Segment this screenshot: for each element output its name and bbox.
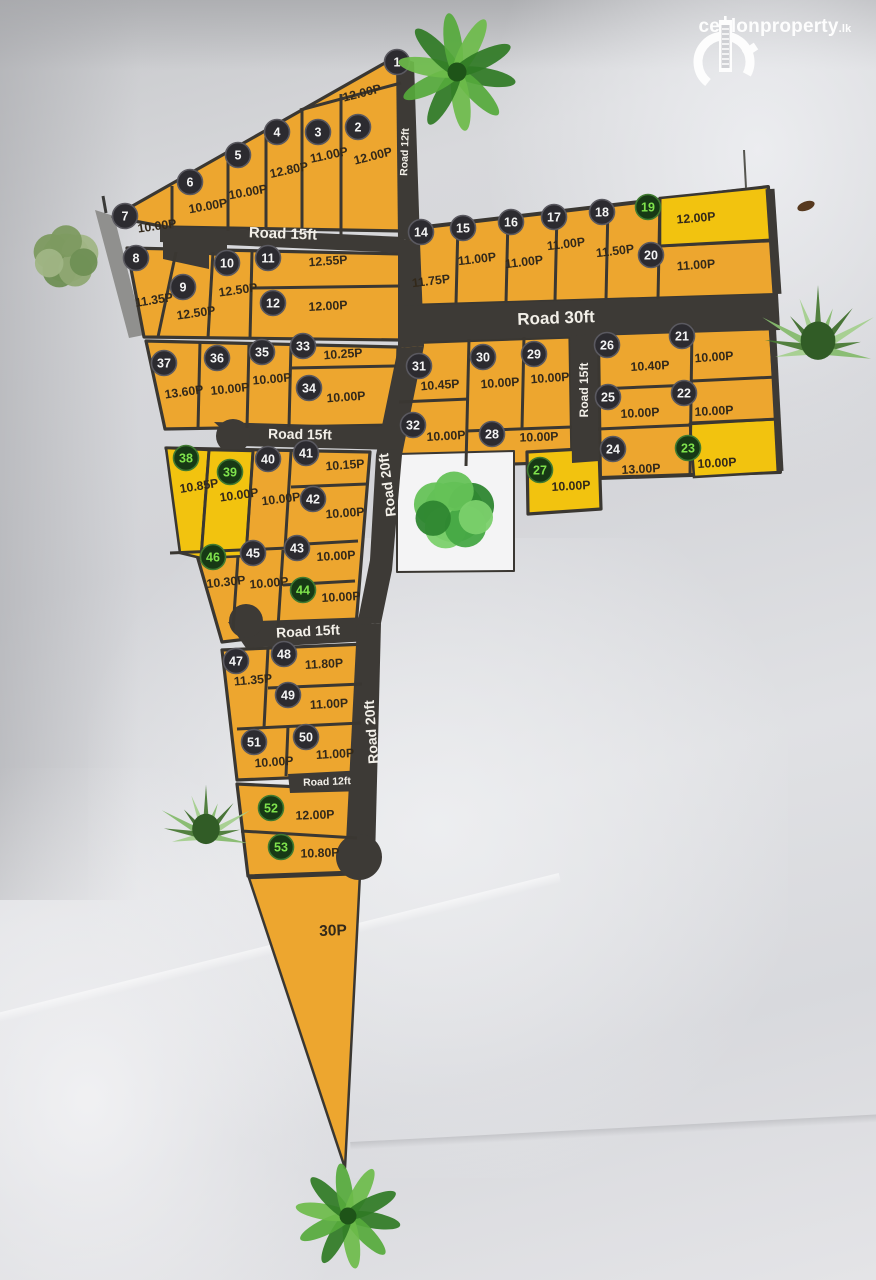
bush-icon <box>34 225 99 287</box>
plot-size-label: 10.00P <box>316 548 356 564</box>
open-area-label: 30P <box>319 922 347 940</box>
agave-center <box>192 814 220 844</box>
plot-size-label: 10.00P <box>326 389 366 406</box>
plot-number: 14 <box>414 226 428 240</box>
palm-crown <box>447 62 466 81</box>
plot-divider <box>250 252 252 339</box>
foliage-blob <box>70 248 98 276</box>
plot-number: 33 <box>296 340 310 354</box>
plot-size-label: 10.00P <box>530 370 570 387</box>
plot-number: 8 <box>133 252 140 266</box>
brand-logo-icon <box>686 16 768 100</box>
plot-number: 18 <box>595 206 609 220</box>
plot-number: 10 <box>220 257 234 271</box>
plot-number: 19 <box>641 201 655 215</box>
plot-size-label: 10.00P <box>519 429 558 444</box>
plot-size-label: 10.80P <box>300 845 339 860</box>
plot-size-label: 10.25P <box>323 346 363 363</box>
plot-number: 20 <box>644 249 658 263</box>
plot-number: 50 <box>299 731 313 745</box>
road-turnaround <box>336 834 382 880</box>
plot-number: 38 <box>179 452 193 466</box>
plot-number: 9 <box>180 281 187 295</box>
survey-peg <box>103 196 106 213</box>
road-label: Road 12ft <box>398 127 412 176</box>
plot-number: 39 <box>223 466 237 480</box>
plot-number: 27 <box>533 464 547 478</box>
plot-size-label: 10.00P <box>551 478 591 494</box>
plot-size-label: 12.00P <box>295 807 334 822</box>
plot-number: 37 <box>157 357 171 371</box>
plot-number: 16 <box>504 216 518 230</box>
plot-size-label: 10.00P <box>620 405 660 421</box>
plot-size-label: 11.00P <box>310 696 349 712</box>
plot-number: 49 <box>281 689 295 703</box>
brand-name-rest: property <box>760 16 839 37</box>
plot-size-label: 10.00P <box>480 375 520 392</box>
plot-number: 30 <box>476 351 490 365</box>
plot-divider <box>291 366 396 368</box>
plot-number: 11 <box>261 252 274 266</box>
foliage-blob <box>35 249 64 278</box>
plot-number: 44 <box>296 584 310 598</box>
plot-size-label: 10.00P <box>254 754 294 771</box>
plot-size-label: 10.15P <box>325 457 365 474</box>
plot-number: 51 <box>247 736 261 750</box>
plot-size-label: 13.00P <box>621 461 661 477</box>
plot-number: 23 <box>681 442 695 456</box>
plot-size-label: 11.00P <box>676 257 715 274</box>
road-turnaround <box>216 419 250 453</box>
plot-number: 25 <box>601 391 615 405</box>
survey-line <box>744 150 746 188</box>
brand-tld: .lk <box>839 23 852 35</box>
plot-number: 6 <box>187 176 194 190</box>
plot-number: 40 <box>261 453 275 467</box>
plot-size-label: 10.00P <box>694 349 734 366</box>
foliage-blob <box>459 500 493 534</box>
plot-divider <box>289 345 291 427</box>
plot-size-label: 10.00P <box>325 505 365 522</box>
plot-size-label: 10.00P <box>426 428 466 444</box>
debris-speck <box>796 199 816 214</box>
road-label: Road 15ft <box>577 363 591 418</box>
plot-number: 41 <box>299 447 313 461</box>
block-open-area-30p <box>249 874 360 1168</box>
plot-number: 48 <box>277 648 291 662</box>
brand-logo: ceylonproperty.lk <box>686 16 864 38</box>
plot-number: 12 <box>266 297 280 311</box>
plot-number: 36 <box>210 352 224 366</box>
plot-size-label: 12.55P <box>308 253 348 270</box>
plot-number: 45 <box>246 547 260 561</box>
plot-divider <box>286 726 288 776</box>
road-label: Road 12ft <box>303 775 352 789</box>
land-plot-map: Road 15ftRoad 12ftRoad 30ftRoad 15ftRoad… <box>0 0 876 1280</box>
building-glyph <box>719 16 732 72</box>
plot-number: 52 <box>264 802 278 816</box>
plot-number: 7 <box>122 210 129 224</box>
plot-divider <box>252 286 400 288</box>
photographed-plot-map: Road 15ftRoad 12ftRoad 30ftRoad 15ftRoad… <box>0 0 876 1280</box>
plot-number: 15 <box>456 222 470 236</box>
plot-number: 32 <box>406 419 420 433</box>
road-label: Road 30ft <box>517 307 595 329</box>
plot-size-label: 10.40P <box>630 358 670 374</box>
road-label: Road 15ft <box>276 621 341 640</box>
plot-size-label: 10.00P <box>697 455 737 471</box>
plot-number: 53 <box>274 841 288 855</box>
plot-number: 46 <box>206 551 220 565</box>
foliage-blob <box>416 501 451 536</box>
plot-size-label: 11.80P <box>305 656 344 672</box>
plot-size-label: 10.00P <box>694 403 734 419</box>
plot-number: 28 <box>485 428 499 442</box>
plot-number: 3 <box>315 126 322 140</box>
agave-center <box>801 322 836 360</box>
plot-size-label: 11.00P <box>316 746 355 762</box>
plot-number: 47 <box>229 655 243 669</box>
plot-size-label: 12.00P <box>308 298 348 314</box>
road-label: Road 15ft <box>249 224 318 243</box>
block-plots-1-7 <box>113 55 402 231</box>
plot-number: 22 <box>677 387 691 401</box>
plot-number: 17 <box>547 211 561 225</box>
palm-crown <box>340 1208 357 1225</box>
plot-number: 4 <box>274 126 281 140</box>
plot-number: 42 <box>306 493 320 507</box>
plot-number: 34 <box>302 382 316 396</box>
plot-number: 31 <box>412 360 426 374</box>
road-label: Road 15ft <box>268 425 332 442</box>
plot-number: 2 <box>355 121 362 135</box>
plot-number: 43 <box>290 542 304 556</box>
plot-number: 5 <box>235 149 242 163</box>
plot-number: 29 <box>527 348 541 362</box>
palm-tree-icon <box>294 1162 401 1269</box>
plot-size-label: 10.00P <box>321 589 361 605</box>
plot-number: 26 <box>600 339 614 353</box>
plot-number: 24 <box>606 443 620 457</box>
plot-size-label: 10.45P <box>420 377 460 394</box>
plot-number: 35 <box>255 346 269 360</box>
plot-number: 21 <box>675 330 689 344</box>
